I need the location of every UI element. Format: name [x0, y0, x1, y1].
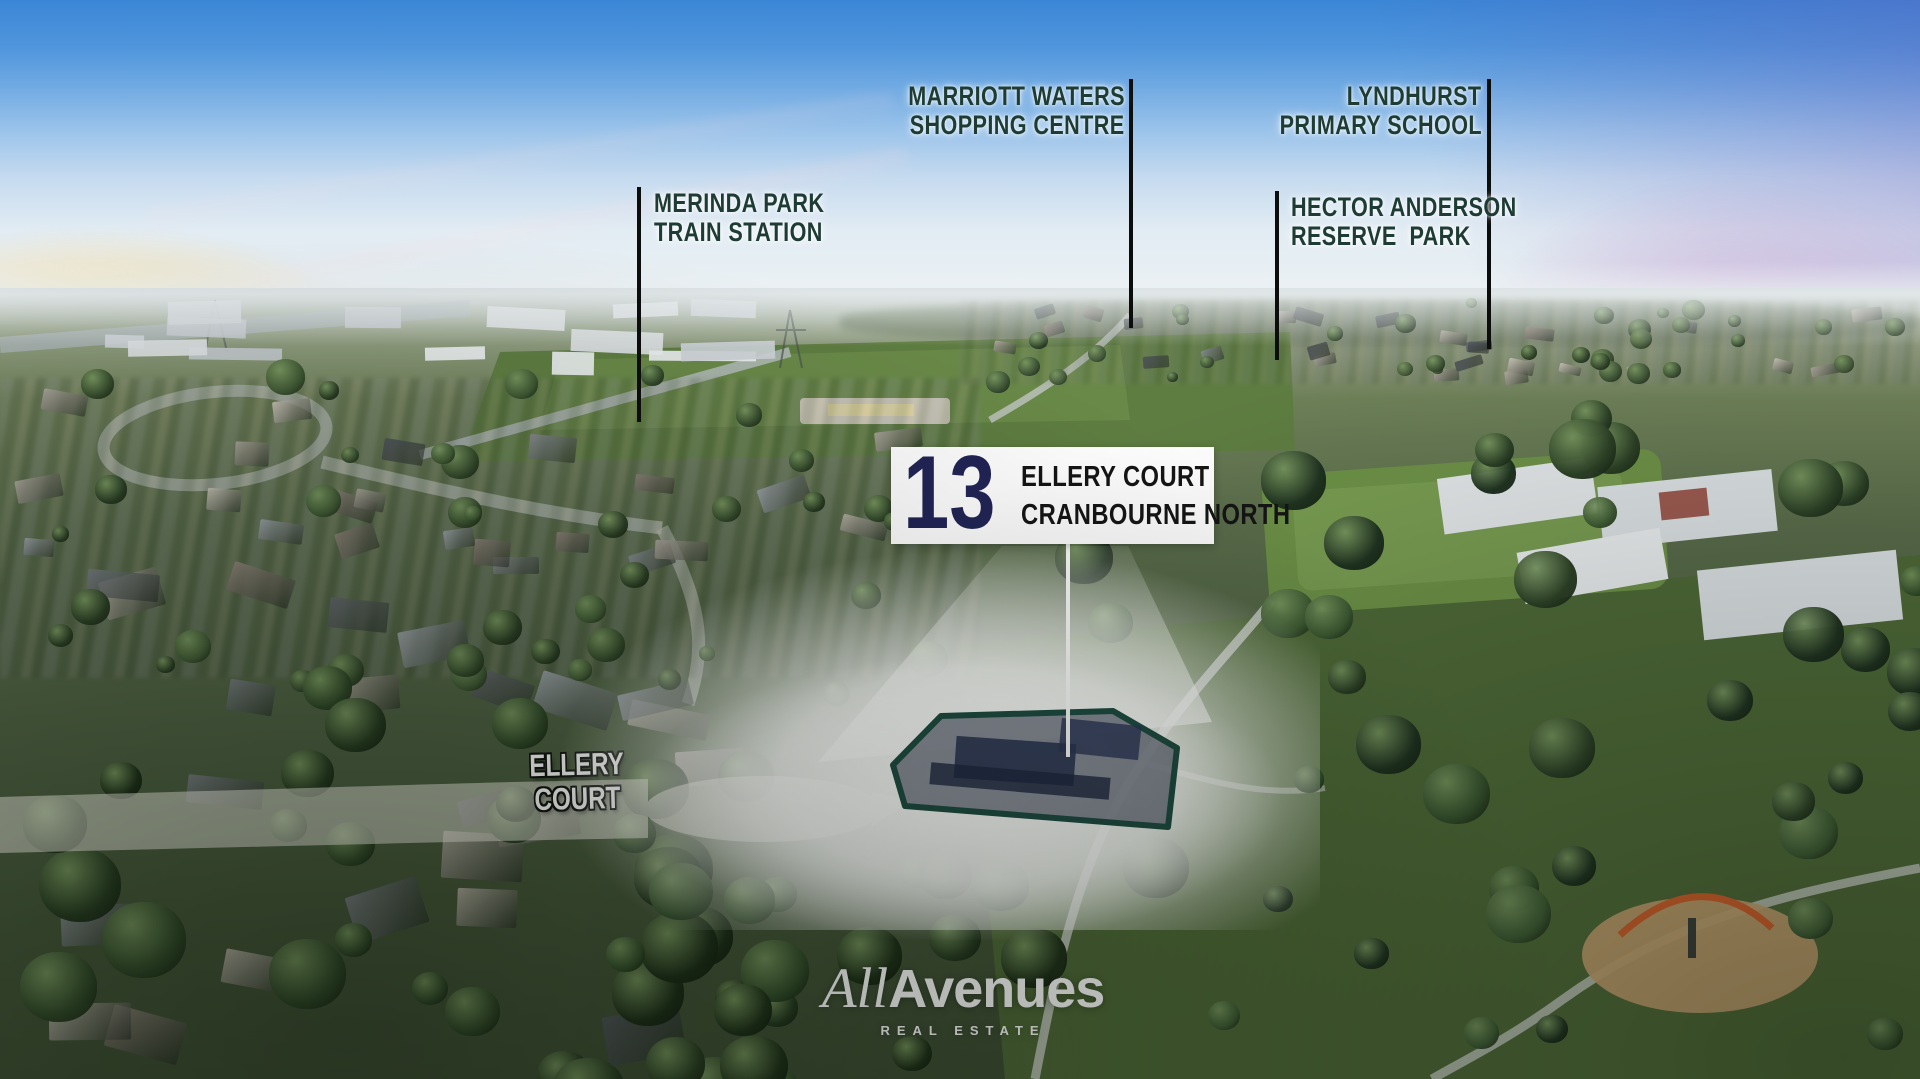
landmark-label-lyndhurst: LYNDHURST PRIMARY SCHOOL	[1082, 82, 1482, 140]
landmark-pointer-line-hector	[1275, 191, 1279, 360]
landmark-label-marriott: MARRIOTT WATERS SHOPPING CENTRE	[725, 82, 1125, 140]
landmark-text: RESERVE PARK	[1291, 222, 1471, 251]
logo-tagline: REAL ESTATE	[763, 1023, 1163, 1038]
landmark-pointer-line-merinda	[637, 187, 641, 422]
property-number: 13	[903, 450, 996, 536]
property-street: ELLERY COURT	[1021, 458, 1290, 496]
landmark-text: HECTOR ANDERSON	[1291, 193, 1517, 222]
landmark-text: MERINDA PARK	[654, 189, 824, 218]
property-address-card: 13 ELLERY COURT CRANBOURNE NORTH	[891, 447, 1214, 544]
address-pointer-line	[1066, 544, 1070, 757]
property-suburb: CRANBOURNE NORTH	[1021, 496, 1290, 534]
agency-logo: AllAvenues REAL ESTATE	[763, 962, 1163, 1038]
landmark-text: PRIMARY SCHOOL	[1280, 111, 1482, 140]
agency-logo-wordmark: AllAvenues	[763, 962, 1163, 1016]
logo-all: All	[822, 957, 889, 1020]
landmark-label-merinda: MERINDA PARK TRAIN STATION	[654, 189, 1054, 247]
landmark-text: LYNDHURST	[1347, 82, 1482, 111]
landmark-text: TRAIN STATION	[654, 218, 823, 247]
property-boundary	[893, 711, 1177, 827]
aerial-photo: ELLERY COURT MARRIOTT WATERS SHOPPING CE…	[0, 0, 1920, 1079]
logo-avenues: Avenues	[888, 959, 1104, 1019]
property-address-text: ELLERY COURT CRANBOURNE NORTH	[1021, 458, 1350, 534]
landmark-label-hector: HECTOR ANDERSON RESERVE PARK	[1291, 193, 1691, 251]
